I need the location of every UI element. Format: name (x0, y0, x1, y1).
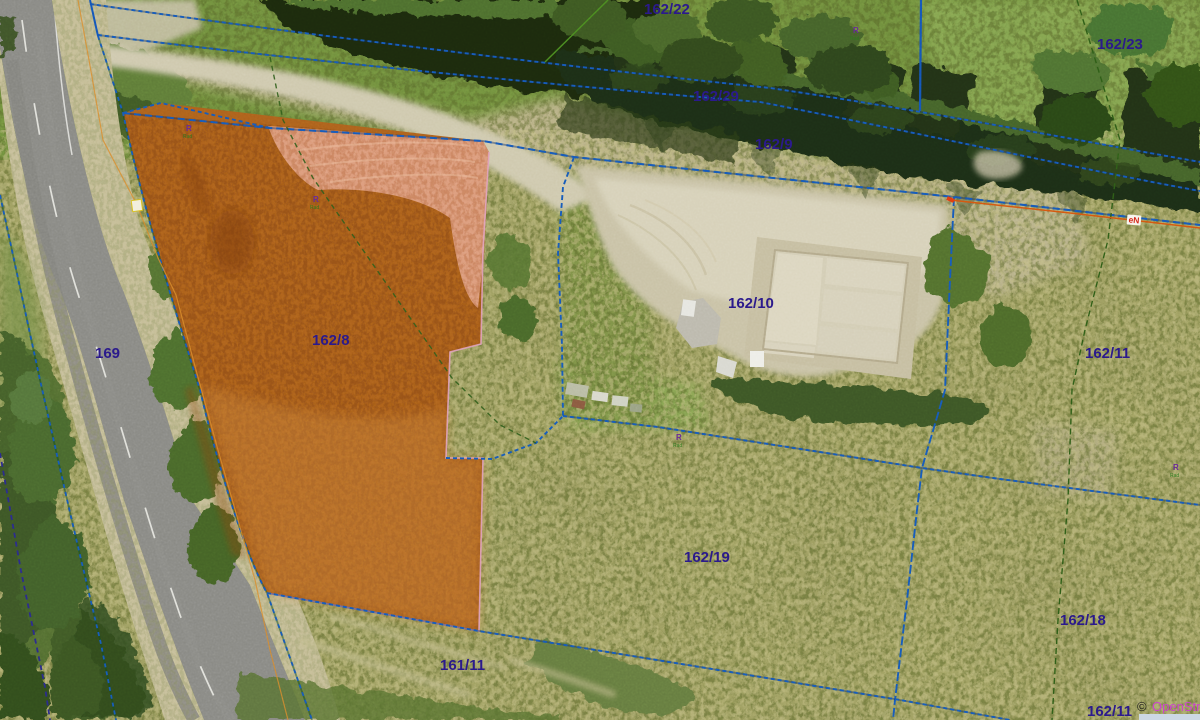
svg-text:162/19: 162/19 (684, 549, 730, 566)
svg-text:162/10: 162/10 (728, 295, 774, 312)
svg-text:R: R (853, 26, 859, 35)
svg-text:162/8: 162/8 (312, 332, 350, 349)
svg-text:162/9: 162/9 (755, 136, 793, 153)
svg-text:OpenStre: OpenStre (1152, 699, 1200, 714)
svg-text:162/18: 162/18 (1060, 612, 1106, 629)
svg-text:R: R (676, 433, 682, 442)
svg-text:Rad: Rad (673, 443, 682, 449)
svg-text:R: R (313, 195, 319, 204)
svg-text:Rad: Rad (183, 134, 192, 140)
svg-text:162/22: 162/22 (644, 1, 690, 18)
svg-text:162/23: 162/23 (1097, 36, 1143, 53)
svg-text:eN: eN (1128, 215, 1140, 226)
svg-text:Rad: Rad (310, 205, 319, 211)
svg-text:Rad: Rad (1170, 473, 1179, 479)
svg-text:162/11: 162/11 (1085, 345, 1130, 362)
svg-text:162/29: 162/29 (693, 88, 739, 105)
svg-text:161/11: 161/11 (440, 657, 485, 674)
svg-text:Rad: Rad (850, 36, 859, 42)
svg-text:©: © (1137, 699, 1147, 714)
svg-text:169: 169 (95, 345, 120, 362)
svg-text:R: R (186, 124, 192, 133)
svg-text:R: R (1173, 463, 1179, 472)
svg-text:162/11: 162/11 (1087, 703, 1132, 720)
